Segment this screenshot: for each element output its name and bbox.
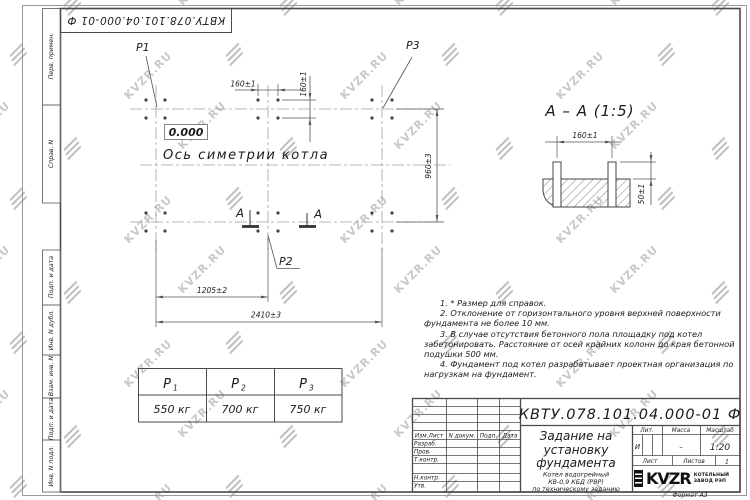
dim-160-vertical: 160±1 <box>299 71 308 96</box>
scale-header: Масштаб <box>706 428 734 434</box>
anchor-bolt-dot <box>276 98 279 101</box>
title-block-header-cell: Изм.Лист <box>415 434 444 440</box>
anchor-bolt-dot <box>276 116 279 119</box>
anchor-bolt-dot <box>163 98 166 101</box>
dim-160-horizontal: 160±1 <box>230 80 255 89</box>
section-view-title: А – А (1:5) <box>544 102 634 120</box>
symmetry-axis-label: Ось симетрии котла <box>163 148 329 163</box>
margin-label: Подп. и дата <box>48 398 55 440</box>
anchor-bolt-dot <box>370 116 373 119</box>
anchor-bolt-dot <box>163 211 166 214</box>
title-block-title-line: фундамента <box>536 456 615 470</box>
load-table-header-sub: 2 <box>241 384 246 393</box>
anchor-bolt-dot <box>276 229 279 232</box>
dim-section-50: 50±1 <box>637 184 646 205</box>
drawing-sheet: KVZR.RUKVZR.RUKVZR.RUKVZR.RUKVZR.RUKVZR.… <box>0 0 750 500</box>
anchor-bolt-dot <box>256 211 259 214</box>
load-table-header-sub: 1 <box>173 384 178 393</box>
section-letter: А <box>313 207 322 221</box>
mass-header: Масса <box>672 428 691 434</box>
margin-label: Справ. N <box>48 139 55 168</box>
anchor-bolt-dot <box>390 229 393 232</box>
mass-value: – <box>679 443 683 451</box>
anchor-bolt-dot <box>276 211 279 214</box>
load-table-header: P <box>299 377 307 392</box>
load-point-label-p2: P2 <box>279 255 293 268</box>
anchor-bolt <box>553 162 561 207</box>
title-block-header-cell: Дата <box>501 434 517 440</box>
load-table-header: P <box>231 377 239 392</box>
anchor-bolt-dot <box>163 229 166 232</box>
title-block-title-line: установку <box>543 443 610 457</box>
anchor-bolt-dot <box>390 211 393 214</box>
anchor-bolt-dot <box>256 229 259 232</box>
anchor-bolt-dot <box>256 116 259 119</box>
anchor-bolt-dot <box>370 229 373 232</box>
plan-view: P1 P3 P2 0.000 Ось симетрии котла А А <box>130 39 450 327</box>
anchor-bolt-dot <box>163 116 166 119</box>
drawing-linework: Перв. примен. Справ. N Подп. и дата Инв.… <box>0 0 750 500</box>
title-block-doc-number: КВТУ.078.101.04.000-01 Ф <box>519 407 742 423</box>
dim-section-160: 160±1 <box>572 131 597 140</box>
title-block-row-label: Разраб. <box>414 442 437 448</box>
anchor-bolt <box>608 162 616 207</box>
margin-label: Инв. N подл. <box>48 446 55 487</box>
title-block-row-label: Т.контр. <box>414 458 439 464</box>
load-table-header-sub: 3 <box>309 384 314 393</box>
anchor-bolt-dot <box>144 229 147 232</box>
section-view: А – А (1:5) 160±1 50±1 <box>543 102 656 207</box>
margin-label: Подп. и дата <box>48 256 55 298</box>
title-block-title-line: Задание на <box>540 429 613 443</box>
anchor-bolt-dot <box>370 98 373 101</box>
section-letter: А <box>235 206 244 220</box>
margin-label: Перв. примен. <box>48 33 55 79</box>
title-block: КВТУ.078.101.04.000-01 Ф Задание на уста… <box>413 399 742 494</box>
title-block-row-label: Пров. <box>414 450 431 456</box>
anchor-bolt-dot <box>144 211 147 214</box>
section-cut-marks: А А <box>235 206 322 227</box>
load-table-value: 550 кг <box>154 403 191 416</box>
title-block-row-label: Утв. <box>414 484 426 490</box>
scale-value: 1:20 <box>710 443 730 453</box>
margin-labels: Перв. примен. Справ. N Подп. и дата Инв.… <box>47 33 55 487</box>
anchor-bolt-dot <box>370 211 373 214</box>
anchor-bolt-dot <box>390 116 393 119</box>
top-left-stamp-box <box>61 9 232 33</box>
load-table: P 1 P 2 P 3 550 кг 700 кг 750 кг <box>139 369 343 423</box>
sheets-value: 1 <box>725 458 729 466</box>
lit-value: И <box>635 443 641 451</box>
margin-label: Взам. инв. N <box>48 356 55 397</box>
centerlines <box>130 85 450 250</box>
load-point-label-p1: P1 <box>136 41 150 54</box>
anchor-bolt-dots <box>144 98 393 232</box>
sheet-label: Лист <box>642 459 658 465</box>
dim-2410: 2410±3 <box>251 311 281 320</box>
anchor-bolt-dot <box>144 116 147 119</box>
anchor-bolt-dot <box>390 98 393 101</box>
title-block-header-cell: Подп. <box>480 434 498 440</box>
elevation-value: 0.000 <box>169 126 204 139</box>
lit-header: Лит. <box>639 428 654 434</box>
title-block-subtitle-line: по техническому заданию <box>532 486 620 493</box>
dim-1205: 1205±2 <box>197 286 227 295</box>
load-point-label-p3: P3 <box>406 39 420 52</box>
anchor-bolt-dot <box>144 98 147 101</box>
dim-960: 960±3 <box>424 153 433 179</box>
margin-label: Инв. N дубл. <box>47 310 55 351</box>
sheets-label: Листов <box>682 459 705 465</box>
load-table-header: P <box>163 377 171 392</box>
load-table-value: 750 кг <box>290 403 327 416</box>
anchor-bolt-dot <box>256 98 259 101</box>
title-block-subtitle-line: Котел водогрейный <box>543 472 609 479</box>
title-block-row-label: Н.контр. <box>414 476 440 482</box>
title-block-subtitle-line: КВ-0,9 КБД (РВР) <box>548 479 604 486</box>
load-table-value: 700 кг <box>222 403 259 416</box>
title-block-header-cell: N докум. <box>449 434 476 440</box>
